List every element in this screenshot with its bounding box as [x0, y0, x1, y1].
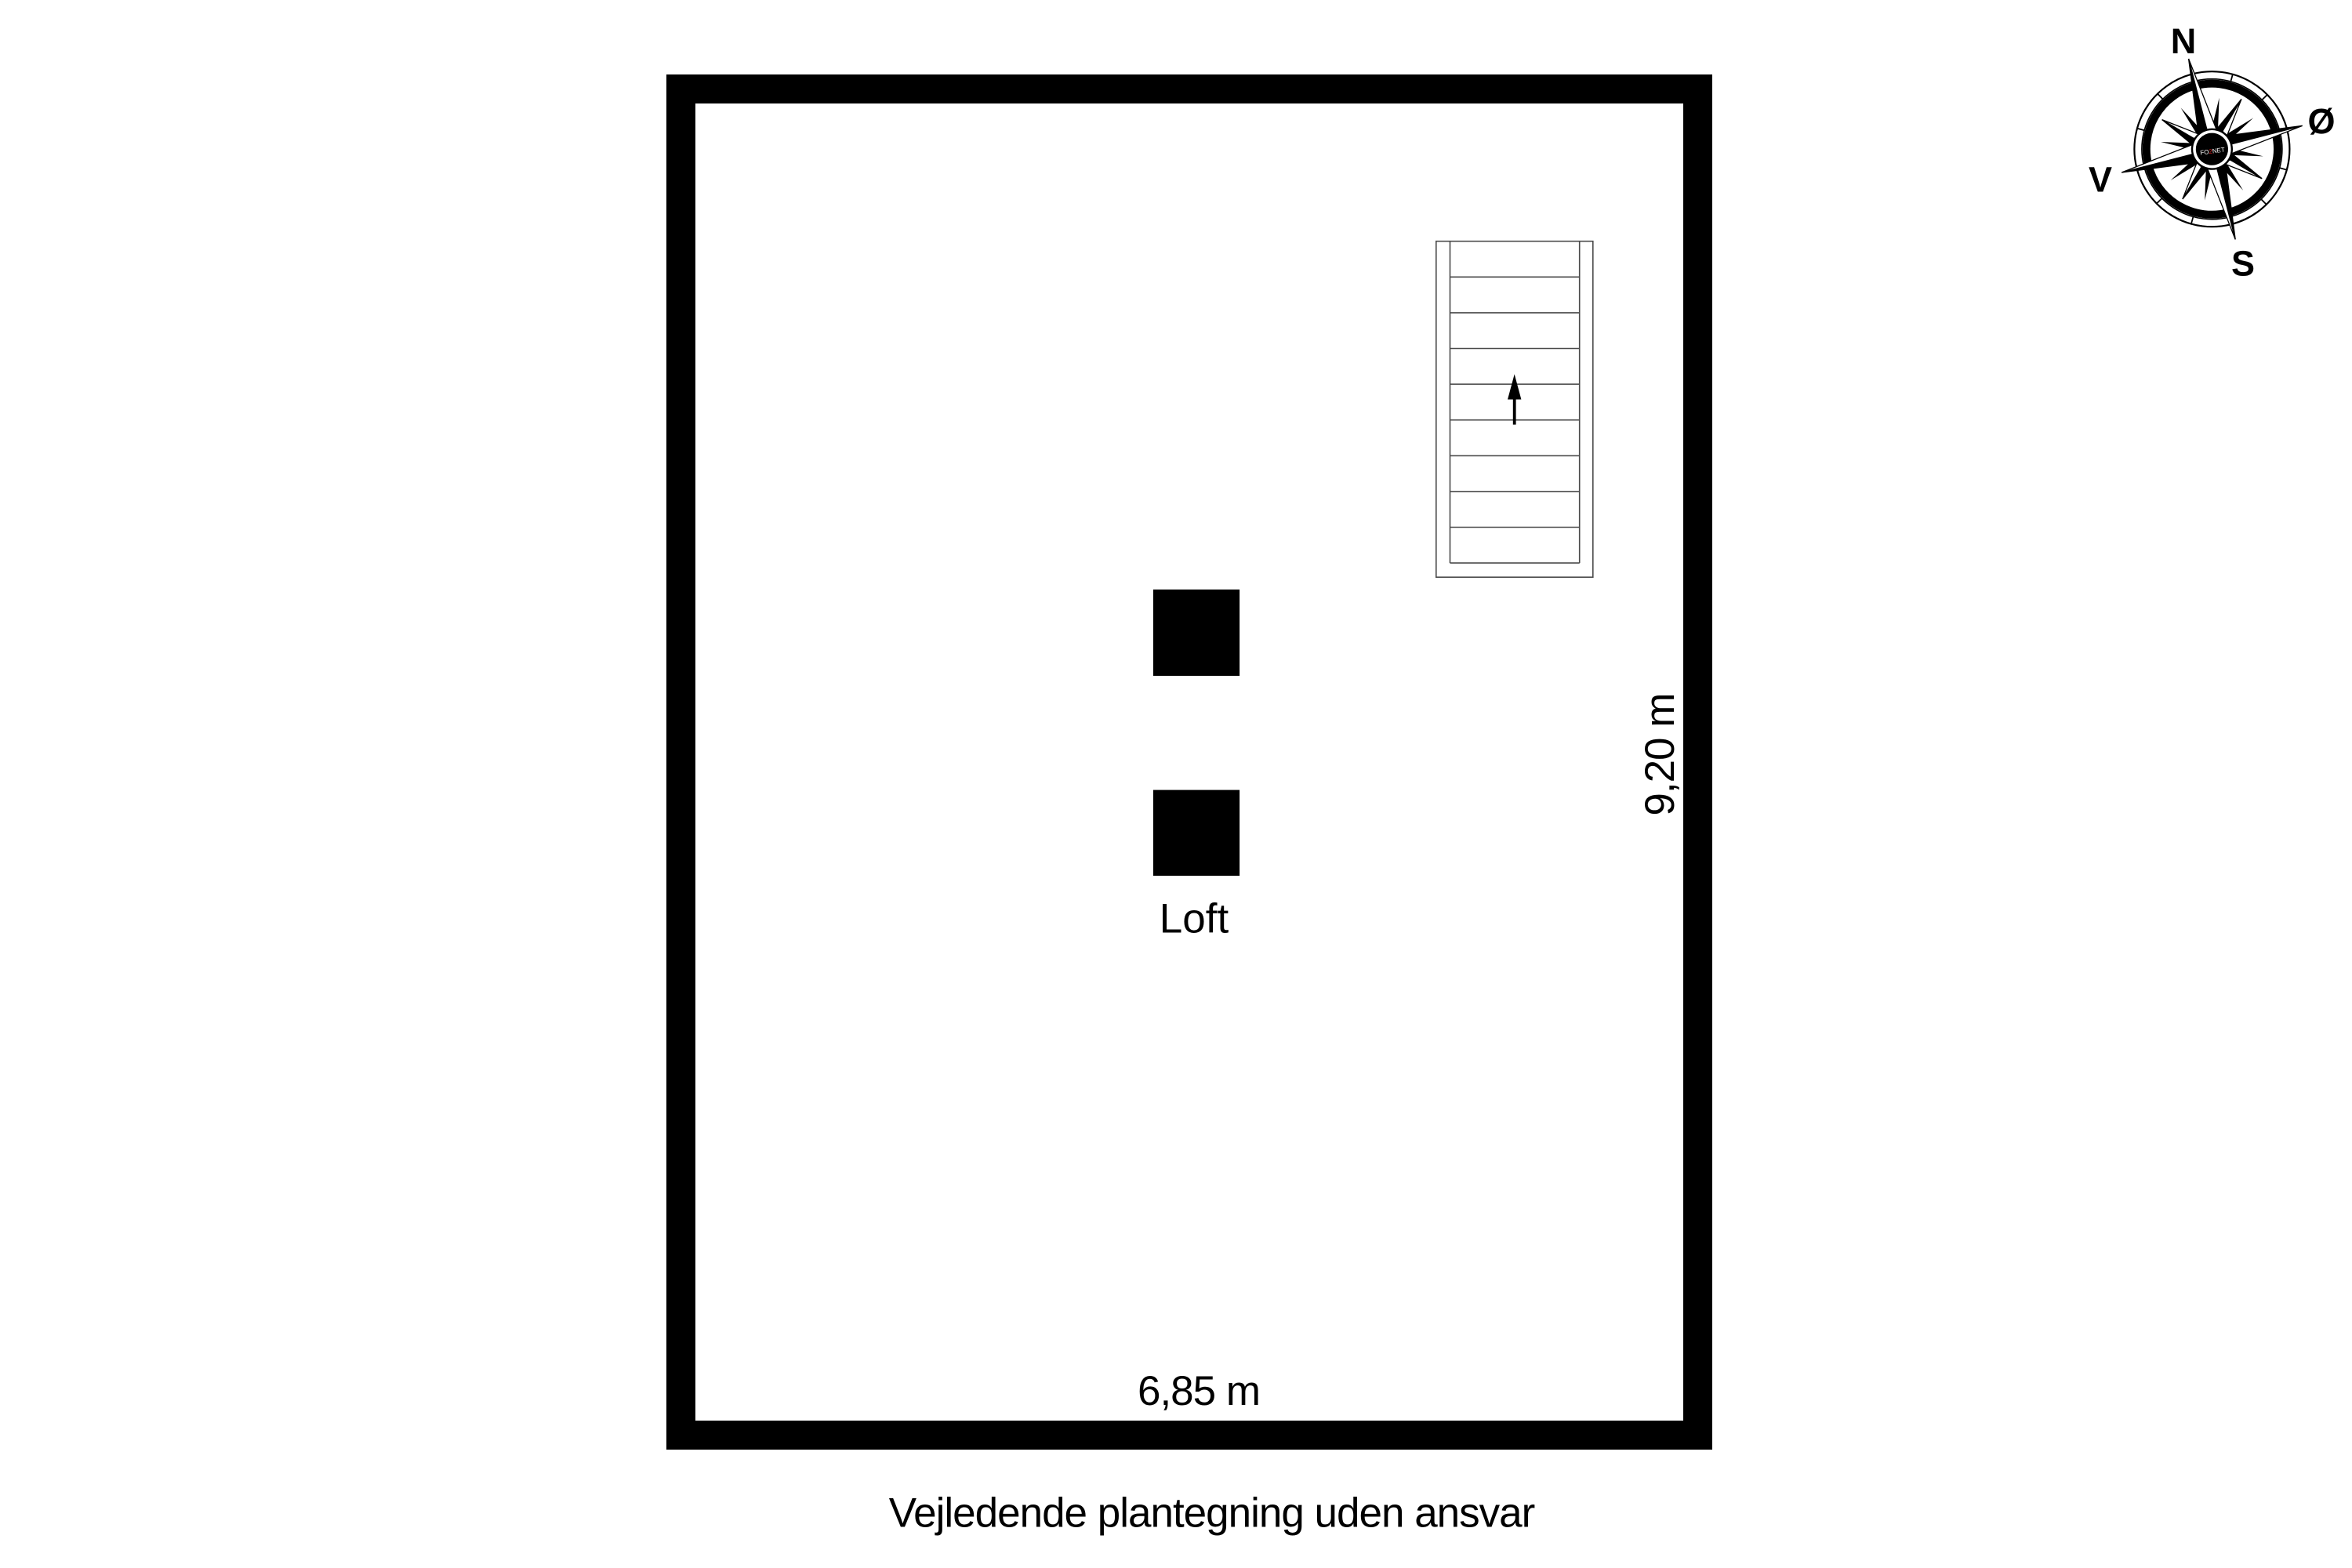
svg-text:Ø: Ø: [2307, 101, 2335, 141]
svg-text:Loft: Loft: [1160, 895, 1229, 942]
svg-text:V: V: [2089, 160, 2112, 200]
svg-text:9,20 m: 9,20 m: [1637, 694, 1683, 816]
svg-text:6,85 m: 6,85 m: [1138, 1368, 1260, 1414]
svg-text:S: S: [2231, 243, 2255, 283]
svg-text:N: N: [2171, 21, 2197, 61]
svg-text:Vejledende plantegning uden an: Vejledende plantegning uden ansvar: [889, 1490, 1535, 1537]
